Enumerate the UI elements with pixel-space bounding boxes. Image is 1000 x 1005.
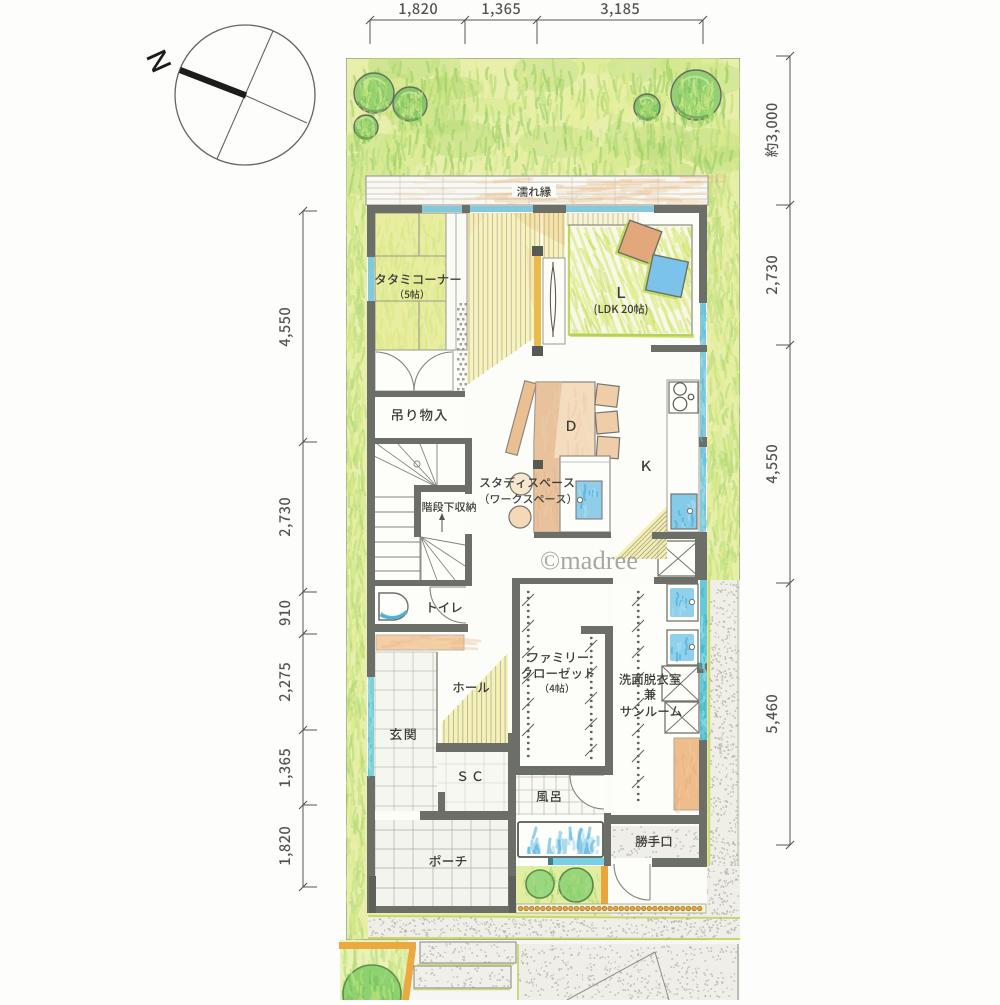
- svg-text:©madree: ©madree: [540, 545, 638, 575]
